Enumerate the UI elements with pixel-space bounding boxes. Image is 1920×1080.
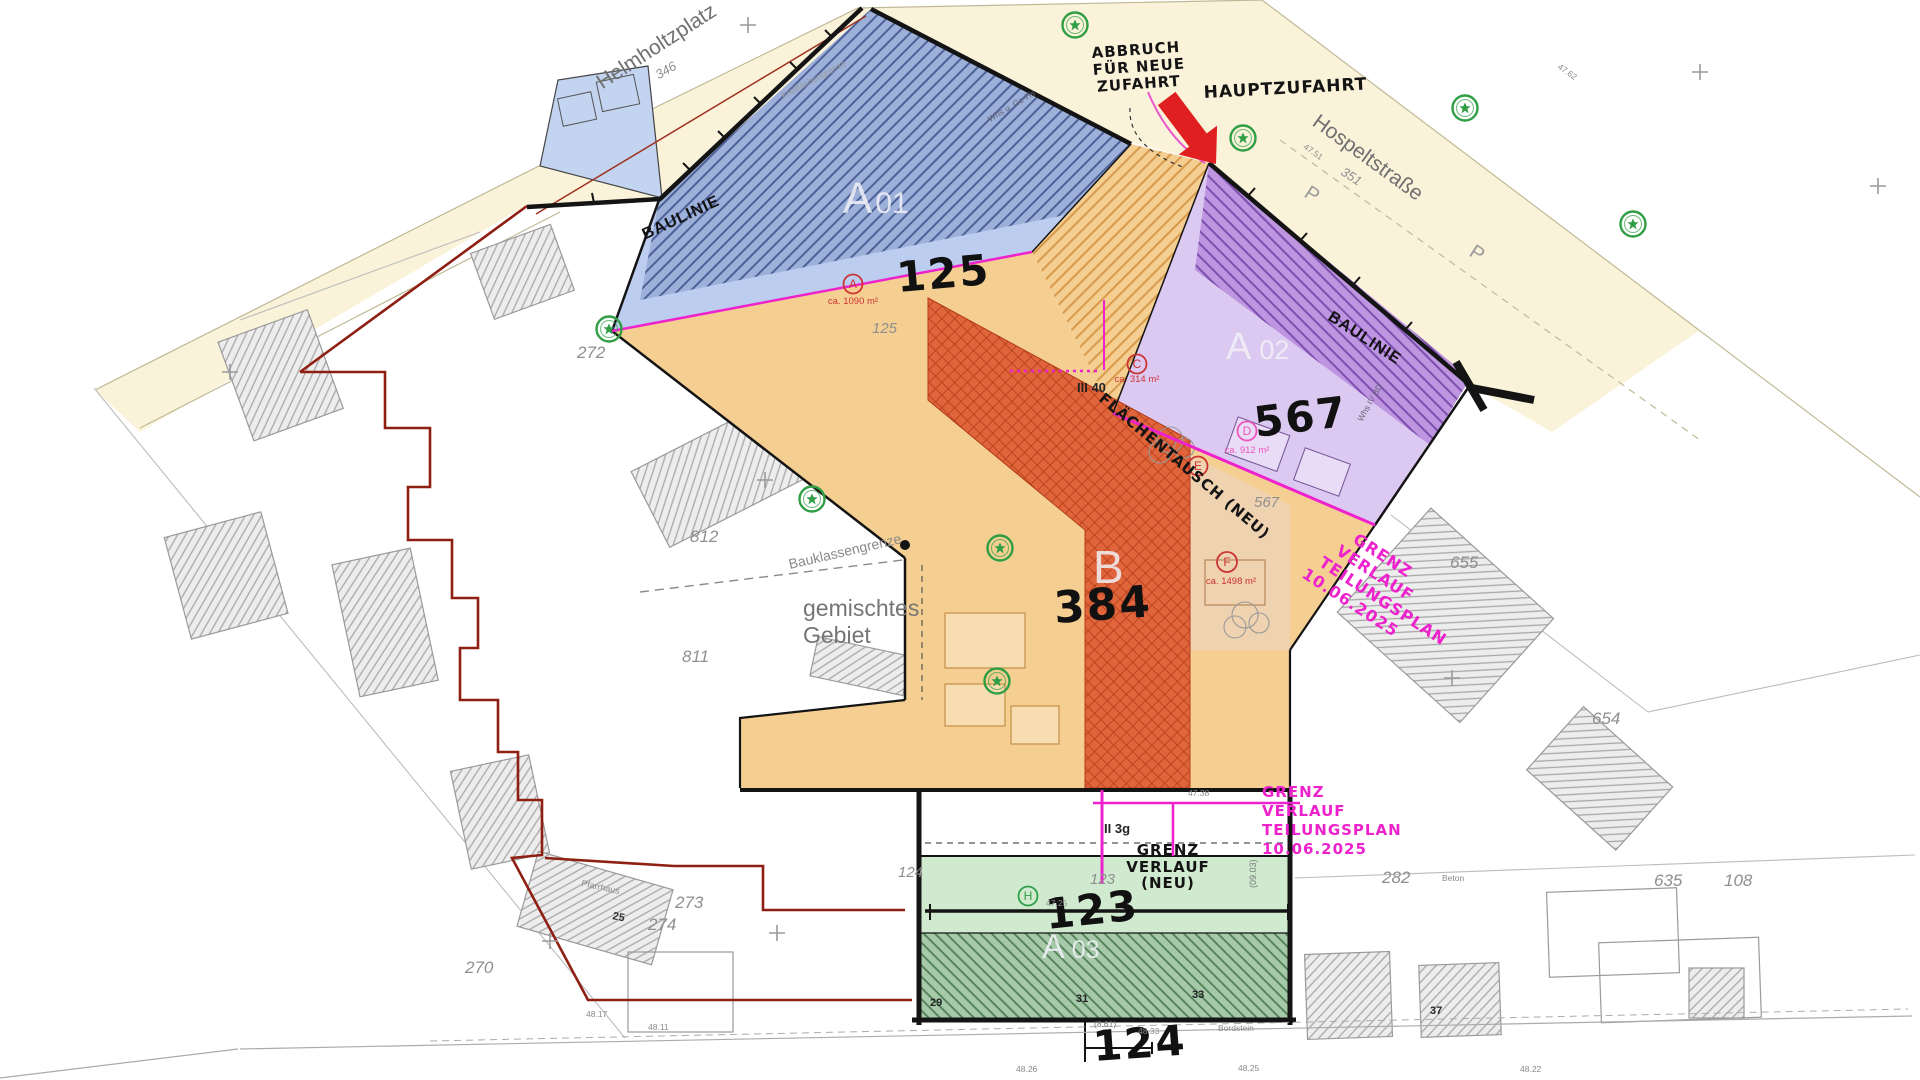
parcel-label: 282 bbox=[1381, 868, 1411, 887]
parcel-label: 812 bbox=[690, 527, 719, 546]
parcel-label: 272 bbox=[576, 343, 606, 362]
street-detail-label: Bordstein bbox=[1218, 1023, 1254, 1033]
parcel-label: 654 bbox=[1592, 709, 1620, 728]
marker-area: ca. 1498 m² bbox=[1206, 576, 1256, 587]
marker-area: ca. 912 m² bbox=[1225, 445, 1270, 456]
grenz-line: 10.06.2025 bbox=[1262, 840, 1367, 858]
marker-letter: F bbox=[1223, 555, 1230, 569]
elevation: 47.25 bbox=[1046, 898, 1068, 908]
zone-b-value: 384 bbox=[1052, 576, 1153, 634]
parcel-label: 270 bbox=[464, 958, 494, 977]
parcel-label: 124 bbox=[898, 864, 923, 881]
marker-letter: A bbox=[849, 277, 857, 291]
tree-icon bbox=[988, 536, 1013, 561]
grenz-line: GRENZ bbox=[1137, 841, 1200, 859]
marker-letter: H bbox=[1024, 889, 1033, 903]
street-detail-label: Beton bbox=[1442, 873, 1464, 883]
zone-letter: A bbox=[1226, 326, 1252, 368]
elevation: 48.17 bbox=[586, 1009, 608, 1019]
parcel-label: 108 bbox=[1724, 871, 1753, 890]
house-number: 37 bbox=[1430, 1005, 1442, 1017]
tree-icon bbox=[1621, 212, 1646, 237]
site-plan-canvas: Helmholtzplatz 346 Hospeltstraße 351 P P… bbox=[0, 0, 1920, 1080]
tree-icon bbox=[1063, 13, 1088, 38]
parcel-label: 811 bbox=[682, 647, 709, 666]
elevation: 48.33 bbox=[1138, 1026, 1160, 1036]
dimension-label: (09.03) bbox=[1248, 859, 1258, 888]
tree-icon bbox=[800, 487, 825, 512]
dimension-label: (8.61) bbox=[1094, 1019, 1116, 1029]
marker-area: ca. 1090 m² bbox=[828, 296, 878, 307]
tree-icon bbox=[1453, 96, 1478, 121]
parcel-label: 655 bbox=[1450, 553, 1479, 572]
house-number: 29 bbox=[930, 997, 942, 1009]
parcel-label: 567 bbox=[1254, 494, 1280, 511]
grenz-line: (NEU) bbox=[1141, 874, 1195, 892]
parcel-label: 123 bbox=[1090, 871, 1116, 888]
grenz-line: GRENZ bbox=[1262, 783, 1325, 801]
zone-letter: A bbox=[1042, 928, 1065, 966]
parcel-label: 274 bbox=[647, 915, 676, 934]
elevation: 47.38 bbox=[1188, 788, 1210, 798]
zone-letter: A bbox=[843, 174, 873, 223]
storeys-label: III 40 bbox=[1077, 380, 1106, 395]
grenz-line: VERLAUF bbox=[1262, 802, 1346, 820]
elevation: 48.22 bbox=[1520, 1064, 1542, 1074]
site-plan-page: Helmholtzplatz 346 Hospeltstraße 351 P P… bbox=[0, 0, 1920, 1080]
zone-number: 02 bbox=[1259, 335, 1289, 365]
house-number: 33 bbox=[1192, 989, 1204, 1001]
house-number: 25 bbox=[611, 910, 625, 924]
zone-number: 03 bbox=[1072, 936, 1100, 964]
zone-a01-value: 125 bbox=[895, 245, 993, 302]
zone-number: 01 bbox=[875, 187, 908, 220]
gemischtes-gebiet-label: gemischtes bbox=[803, 595, 919, 621]
tree-icon bbox=[1231, 126, 1256, 151]
marker-letter: C bbox=[1133, 357, 1142, 371]
elevation: 48.26 bbox=[1016, 1064, 1038, 1074]
tree-icon bbox=[985, 669, 1010, 694]
elevation: 48.25 bbox=[1238, 1063, 1260, 1073]
storeys-label: II 3g bbox=[1104, 821, 1130, 836]
marker-letter: D bbox=[1243, 424, 1252, 438]
gemischtes-gebiet-label: Gebiet bbox=[803, 622, 871, 648]
zone-a03-hatched bbox=[919, 933, 1290, 1020]
parcel-label: 273 bbox=[674, 893, 704, 912]
parcel-label: 635 bbox=[1654, 871, 1683, 890]
elevation: 48.11 bbox=[648, 1022, 669, 1032]
tree-icon bbox=[597, 317, 622, 342]
house-number: 31 bbox=[1076, 993, 1088, 1005]
parcel-label: 125 bbox=[872, 320, 898, 337]
marker-area: ca. 314 m² bbox=[1115, 374, 1160, 385]
grenz-line: TEILUNGSPLAN bbox=[1262, 821, 1402, 839]
abbruch-note: ABBRUCH FÜR NEUE ZUFAHRT bbox=[1091, 38, 1187, 96]
